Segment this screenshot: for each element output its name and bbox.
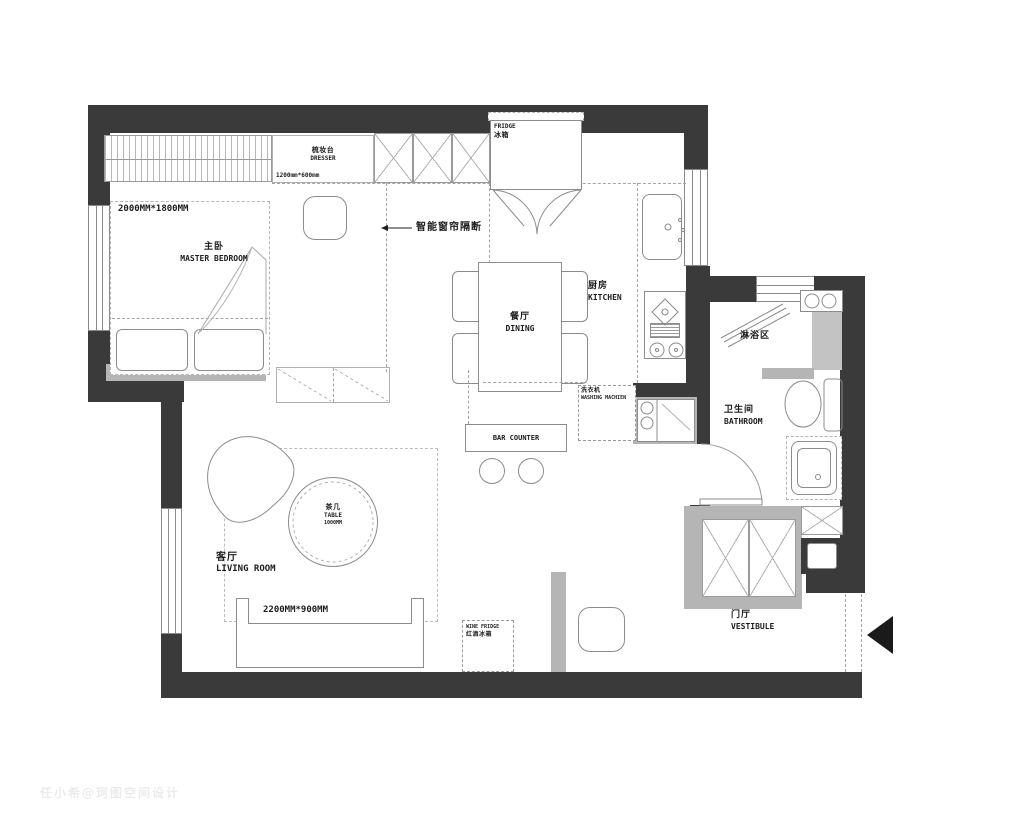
wine-fridge-label: WINE FRIDGE 红酒冰箱	[466, 624, 499, 638]
vanity-basin	[797, 448, 831, 488]
living-label: 客厅 LIVING ROOM	[216, 551, 276, 576]
dresser-label-en: DRESSER	[278, 155, 368, 163]
entry-arrow-icon	[867, 616, 893, 654]
wall-bathroom-top-left	[708, 276, 758, 302]
dressing-boundary-line	[489, 183, 490, 263]
fridge-door-arc-right	[537, 190, 581, 234]
pillow-right	[194, 329, 264, 371]
fridge-label-en: FRIDGE	[494, 123, 516, 131]
fridge-door-leaf-left	[493, 190, 524, 226]
dining-label: 餐厅 DINING	[478, 312, 562, 334]
shoe-cabinet-2	[749, 519, 796, 597]
vestibule-partition	[551, 572, 566, 672]
dining-chair-3	[561, 271, 588, 322]
wall-kitchen-ne-pier	[684, 105, 708, 169]
shower-floor	[812, 306, 842, 370]
window-kitchen	[684, 169, 708, 266]
wall-bedroom-bottom	[88, 381, 184, 402]
kitchen-sink	[642, 194, 682, 260]
bar-stool-2	[518, 458, 544, 484]
stove-grill	[650, 323, 680, 338]
shower-curb	[762, 368, 814, 379]
vestibule-label-en: VESTIBULE	[731, 622, 774, 632]
cabinet-x-2	[413, 133, 452, 183]
wine-fridge-label-cn: 红酒冰箱	[466, 631, 499, 639]
coffee-table-label-en: TABLE	[303, 512, 363, 520]
dresser-dim: 1200mm*600mm	[276, 172, 319, 180]
coffee-table-label: 茶几 TABLE 1000MM	[303, 503, 363, 526]
sofa-dim: 2200MM*900MM	[263, 605, 328, 617]
bench-divider	[333, 368, 334, 402]
kitchen-label-en: KITCHEN	[588, 293, 622, 303]
dining-label-en: DINING	[478, 324, 562, 334]
bar-counter-label: BAR COUNTER	[465, 434, 567, 443]
wall-top	[88, 105, 708, 133]
bathroom-label-en: BATHROOM	[724, 417, 763, 427]
vestibule-label: 门厅 VESTIBULE	[731, 610, 774, 632]
pillow-left	[116, 329, 188, 371]
bedroom-dim: 2000MM*1800MM	[118, 204, 188, 216]
wall-right	[840, 276, 865, 593]
curtain-label: 智能窗帘隔断	[416, 221, 482, 234]
wall-living-left-upper	[161, 402, 182, 508]
dining-chair-4	[561, 333, 588, 384]
fridge-door-arc-left	[493, 190, 537, 234]
dining-chair-2	[452, 333, 479, 384]
water-heater	[807, 543, 837, 569]
wall-living-left-lower	[161, 634, 182, 676]
wardrobe	[104, 135, 272, 182]
window-living-room	[161, 508, 182, 634]
counter-edge-line	[637, 183, 638, 383]
kitchen-label-cn: 厨房	[588, 281, 622, 293]
washing-label-cn: 洗衣机	[581, 387, 626, 395]
washing-label: 洗衣机 WASHING MACHIEN	[581, 387, 626, 401]
bedroom-label-en: MASTER BEDROOM	[158, 254, 270, 264]
bathroom-label: 卫生间 BATHROOM	[724, 405, 763, 427]
dining-label-cn: 餐厅	[478, 312, 562, 324]
bedroom-label-cn: 主卧	[158, 242, 270, 254]
living-label-cn: 客厅	[216, 551, 276, 564]
toilet-bowl	[785, 381, 821, 427]
wall-bottom	[161, 672, 862, 698]
fridge-label-cn: 冰箱	[494, 131, 516, 140]
floor-plan: 梳妆台 DRESSER 1200mm*600mm FRIDGE 冰箱 2000M…	[0, 0, 1024, 823]
coffee-table-dim: 1000MM	[303, 520, 363, 527]
curtain-track-line	[386, 183, 387, 372]
fridge-label: FRIDGE 冰箱	[494, 123, 516, 140]
living-label-en: LIVING ROOM	[216, 564, 276, 576]
fridge-door-leaf-right	[550, 190, 581, 226]
dining-chair-1	[452, 271, 479, 322]
cabinet-front-line	[272, 183, 686, 184]
dresser-label-cn: 梳妆台	[278, 146, 368, 155]
cabinet-x-1	[374, 133, 413, 183]
washing-label-en: WASHING MACHIEN	[581, 395, 626, 402]
bar-stool-1	[479, 458, 505, 484]
window-bedroom	[88, 205, 110, 331]
shower-label: 淋浴区	[740, 331, 770, 343]
coffee-table-label-cn: 茶几	[303, 503, 363, 512]
watermark: 任小希@珂图空间设计	[40, 784, 180, 801]
vestibule-stool	[578, 607, 625, 652]
laundry-sink	[637, 399, 695, 442]
dresser-label: 梳妆台 DRESSER	[278, 146, 368, 163]
bedroom-label: 主卧 MASTER BEDROOM	[158, 242, 270, 264]
bathroom-label-cn: 卫生间	[724, 405, 763, 417]
island-edge-line	[468, 370, 469, 424]
bathroom-basin-counter	[800, 290, 843, 312]
wall-kitchen-east	[686, 266, 710, 384]
vestibule-label-cn: 门厅	[731, 610, 774, 622]
wine-fridge-label-en: WINE FRIDGE	[466, 624, 499, 631]
kitchen-label: 厨房 KITCHEN	[588, 281, 622, 303]
bed-mattress-line	[112, 318, 268, 319]
entry-door-opening	[845, 594, 862, 672]
shoe-cabinet-3	[801, 506, 843, 535]
cabinet-x-3	[452, 133, 490, 183]
counter-front-line	[483, 382, 583, 383]
shoe-cabinet-1	[702, 519, 749, 597]
bathroom-door-arc	[701, 444, 762, 505]
dressing-stool	[303, 196, 347, 240]
